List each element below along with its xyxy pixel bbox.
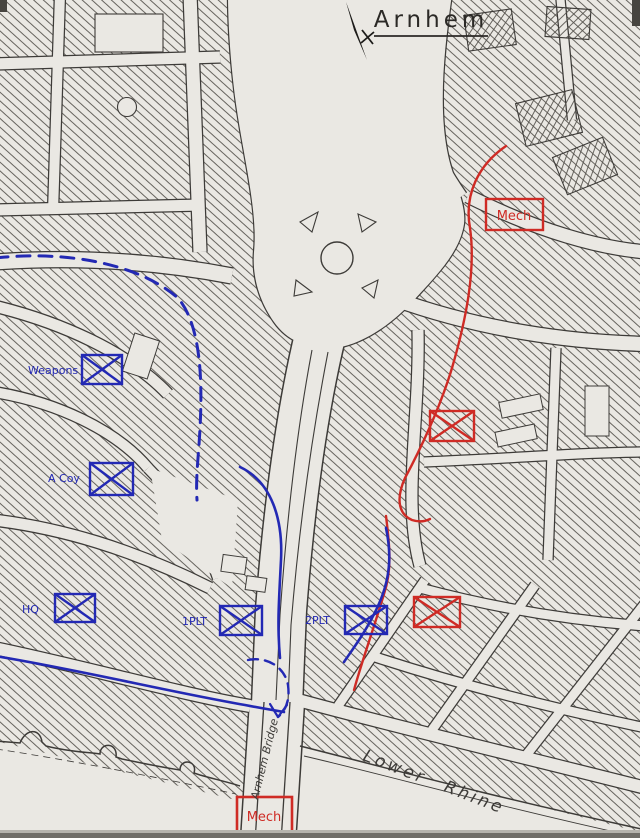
map-page: Weapons A Coy HQ 1PLT: [0, 0, 640, 838]
scan-mark-top-left: [0, 0, 7, 12]
scan-mark-top-right: [632, 0, 640, 26]
unit-label: Mech: [247, 810, 282, 825]
unit-label: 1PLT: [182, 615, 207, 628]
unit-label: A Coy: [48, 472, 80, 485]
map-title: Arnhem: [374, 7, 489, 33]
unit-label: HQ: [22, 603, 39, 616]
unit-label: Mech: [497, 209, 532, 224]
unit-label: Weapons: [28, 364, 78, 377]
unit-label: 2PLT: [305, 614, 330, 627]
map-canvas: Weapons A Coy HQ 1PLT: [0, 0, 640, 838]
map-title-group: Arnhem: [374, 7, 489, 36]
scan-edge-dark: [0, 833, 640, 838]
scan-edge-light: [0, 830, 640, 833]
